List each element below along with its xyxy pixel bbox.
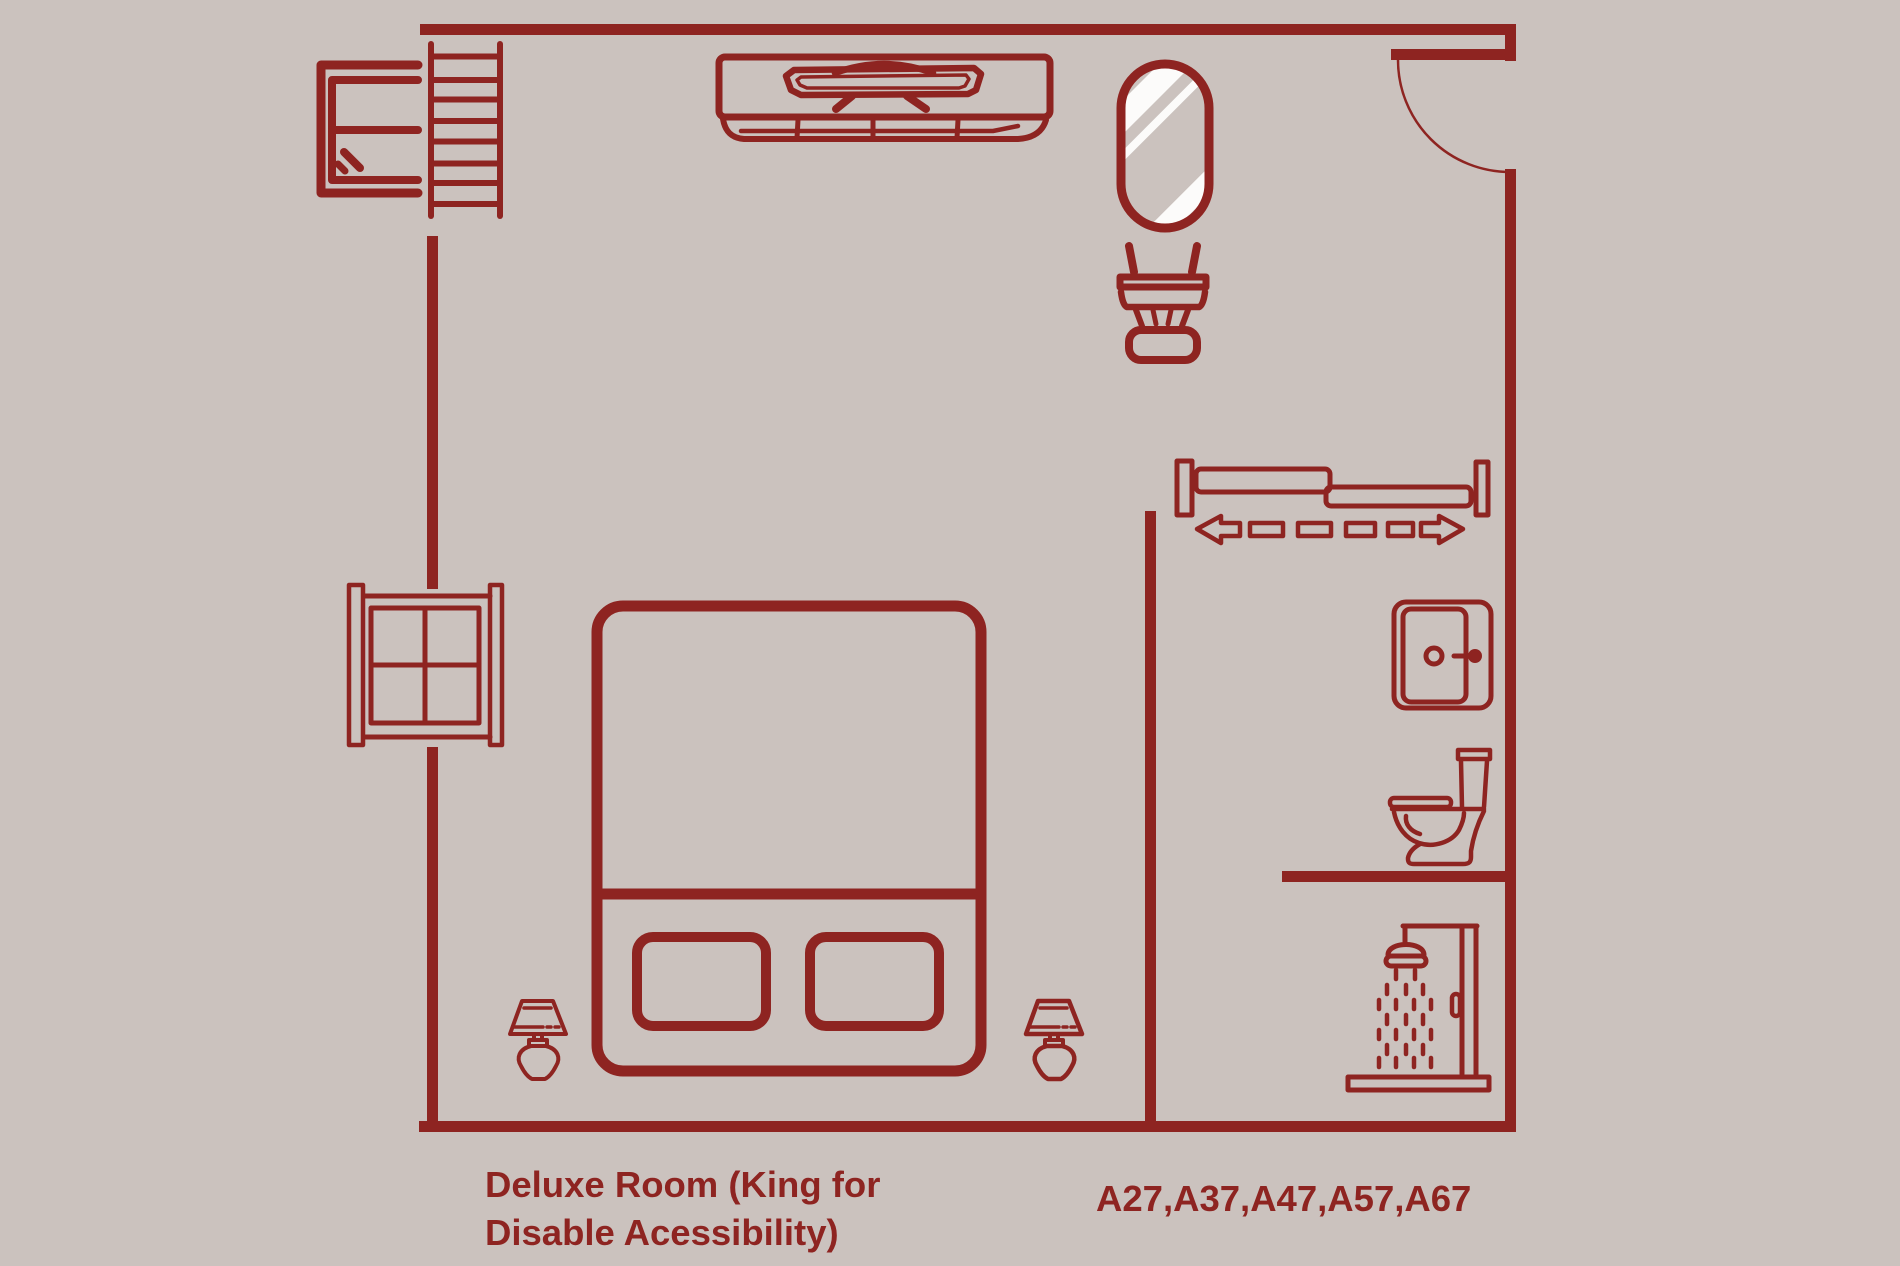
svg-text:Deluxe Room (King for: Deluxe Room (King for <box>485 1164 880 1205</box>
svg-text:A27,A37,A47,A57,A67: A27,A37,A47,A57,A67 <box>1096 1178 1471 1219</box>
svg-text:Disable Acessibility): Disable Acessibility) <box>485 1212 839 1253</box>
